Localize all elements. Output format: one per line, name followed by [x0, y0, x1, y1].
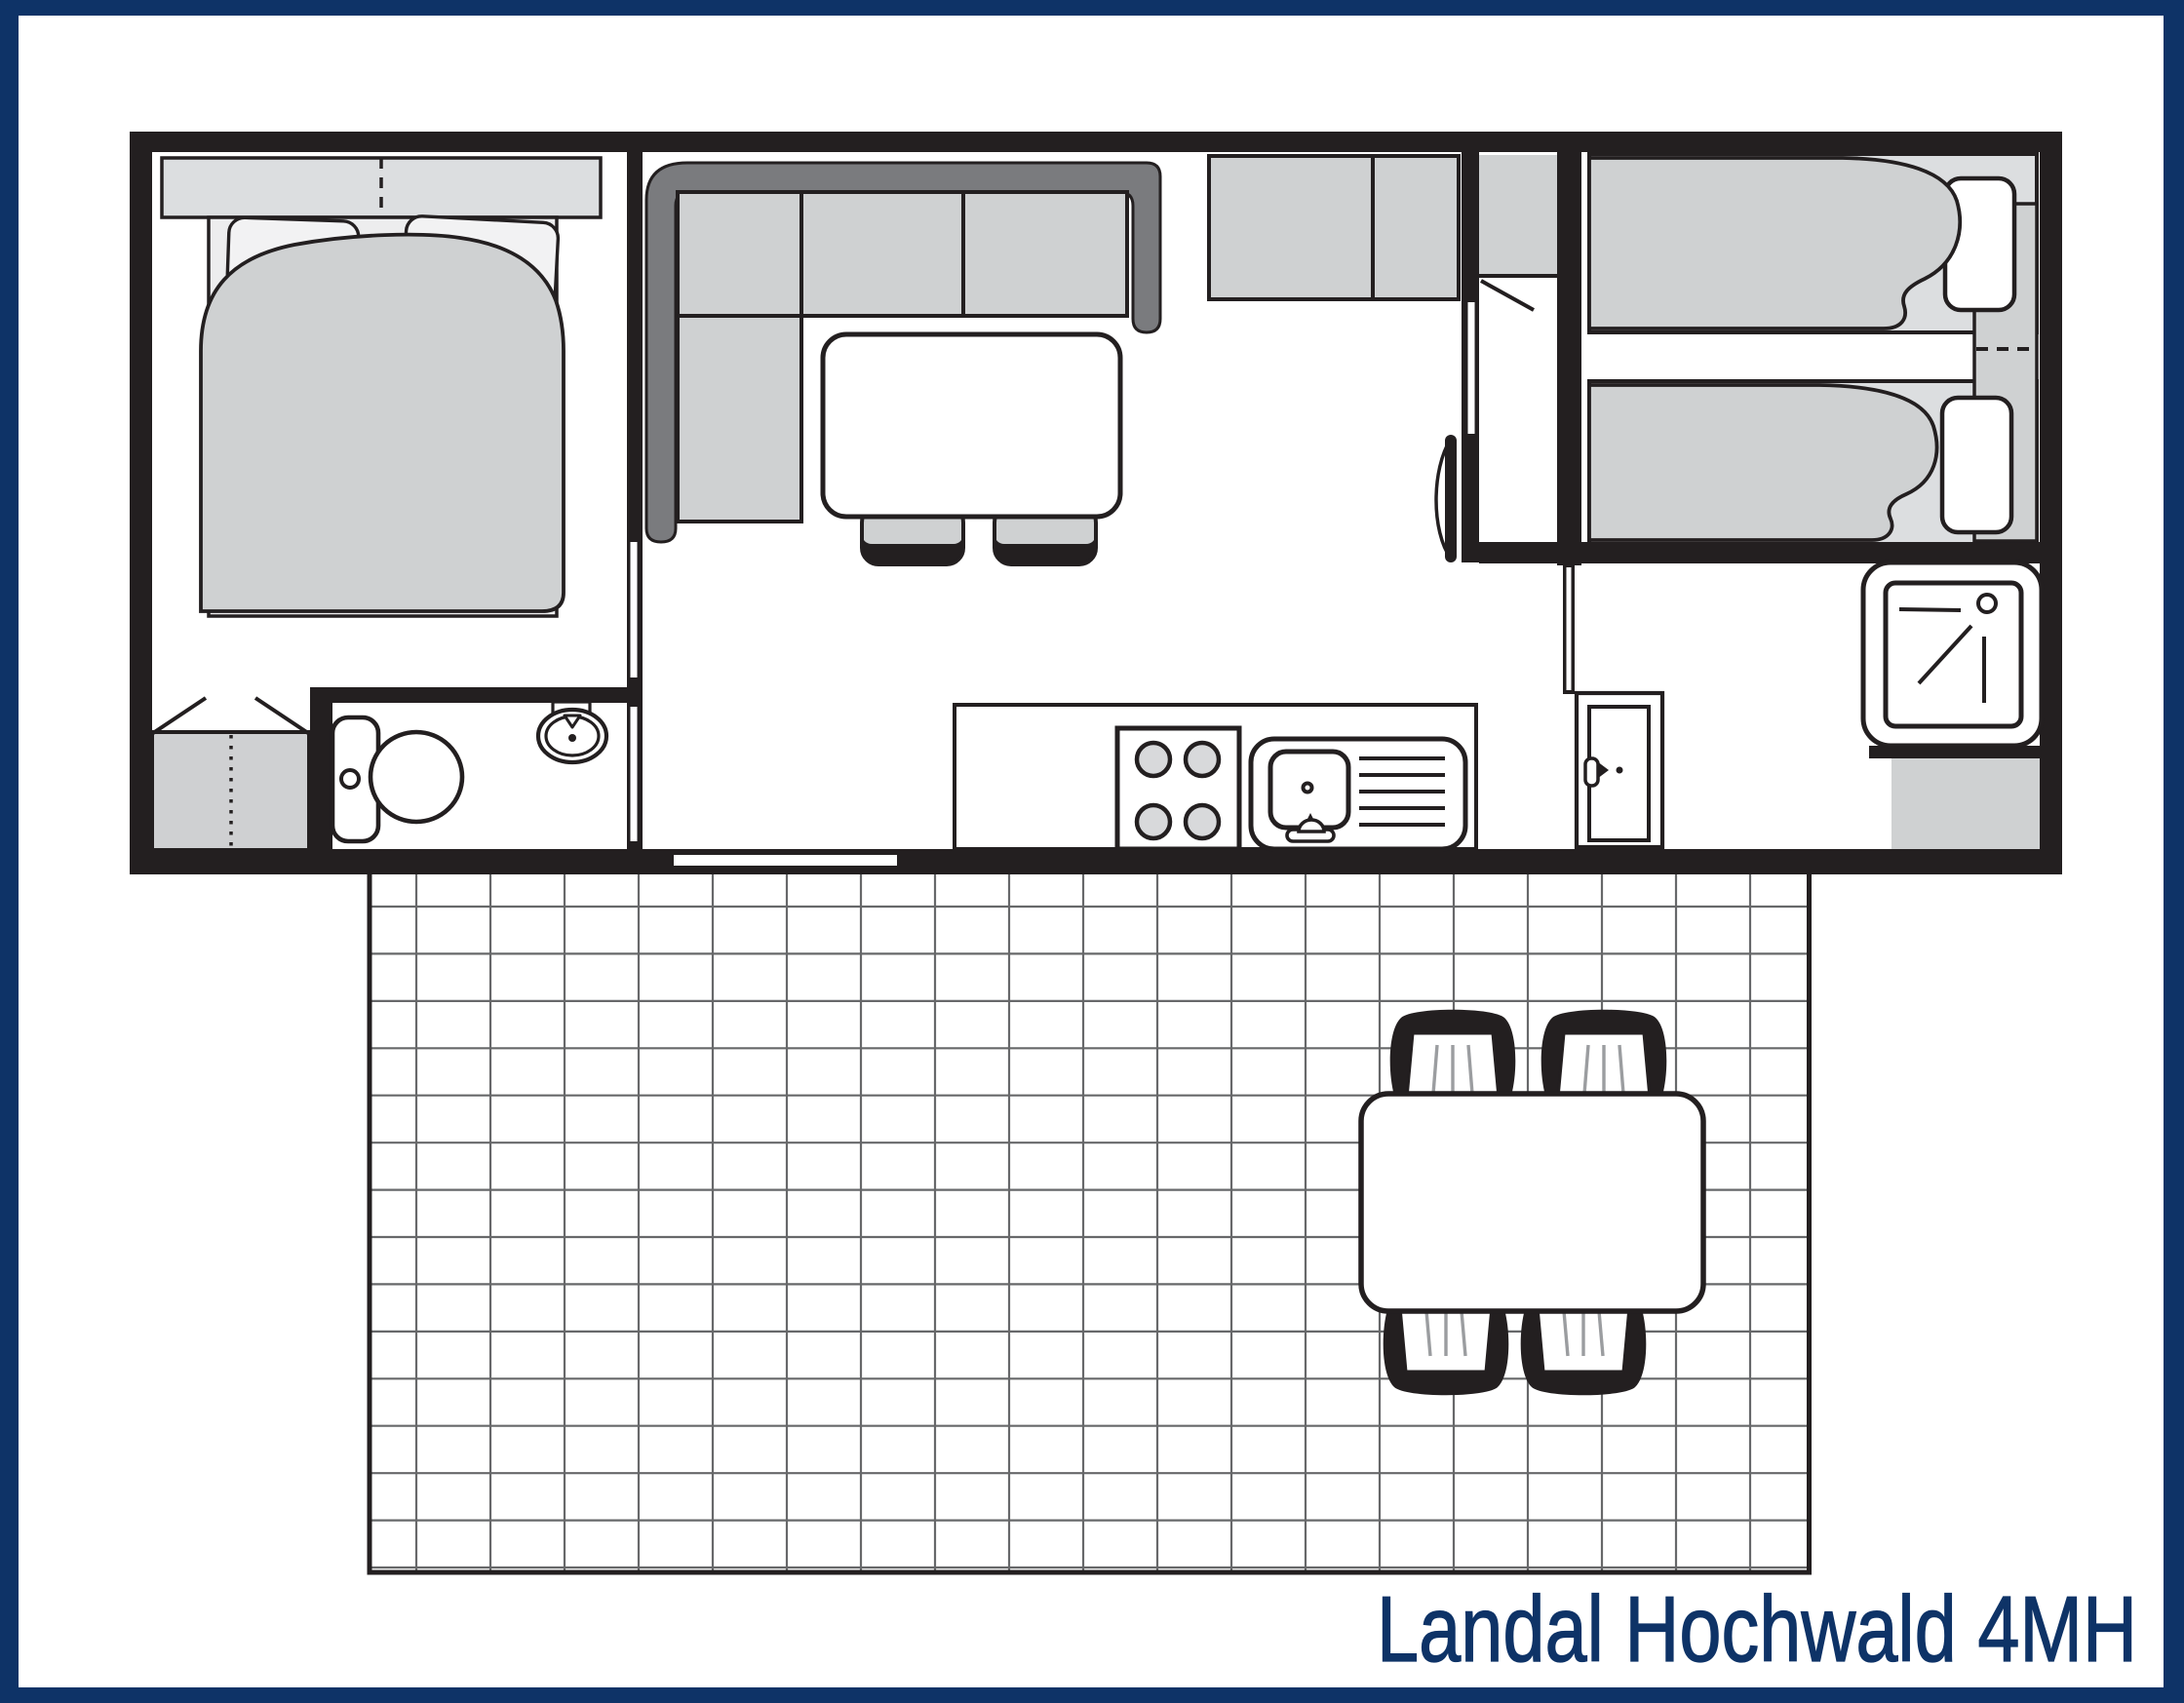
svg-text:Landal Hochwald 4MH: Landal Hochwald 4MH: [1377, 1577, 2137, 1682]
